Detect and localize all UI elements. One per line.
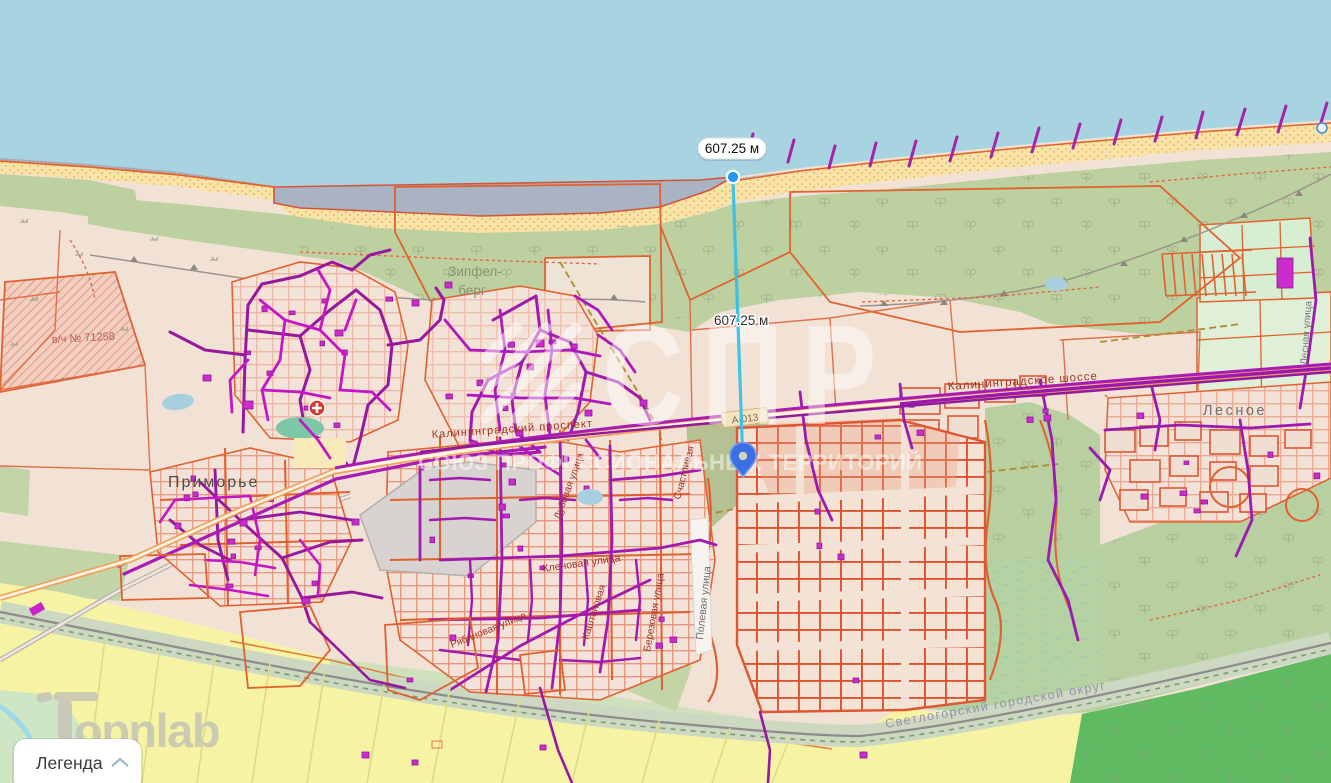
svg-text:Лесное: Лесное bbox=[1203, 403, 1267, 419]
svg-text:Зипфел-: Зипфел- bbox=[448, 264, 502, 279]
svg-text:СОЮЗ ПРОФЕССИОНАЛЬНЫХ ТЕРРИТОР: СОЮЗ ПРОФЕССИОНАЛЬНЫХ ТЕРРИТОРИЙ bbox=[418, 450, 922, 475]
svg-text:607.25 м: 607.25 м bbox=[705, 141, 759, 156]
svg-text:Легенда: Легенда bbox=[36, 753, 103, 773]
svg-text:Приморье: Приморье bbox=[168, 474, 259, 491]
svg-text:607.25 м: 607.25 м bbox=[714, 313, 768, 328]
svg-text:берг: берг bbox=[458, 283, 486, 298]
